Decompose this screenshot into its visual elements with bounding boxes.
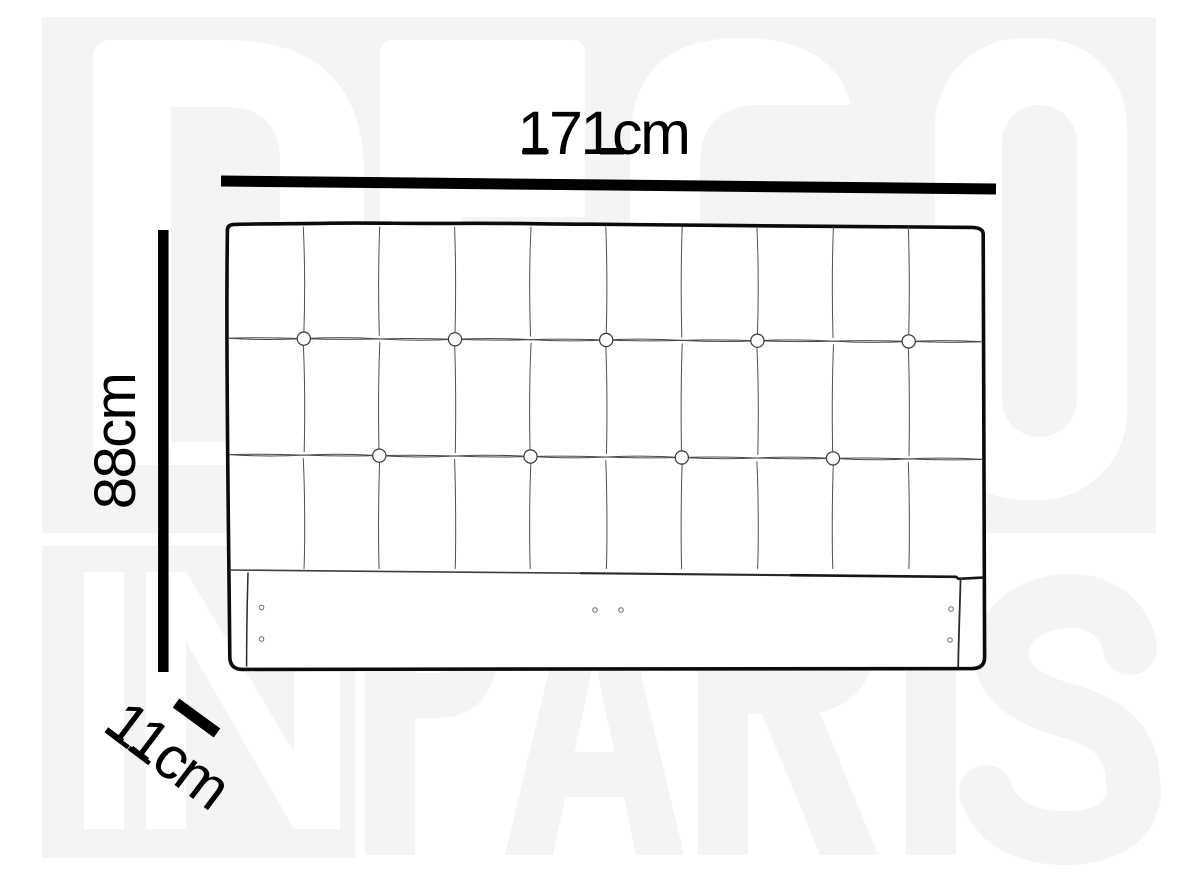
svg-text:171cm: 171cm — [517, 99, 688, 167]
svg-text:88cm: 88cm — [83, 374, 148, 509]
